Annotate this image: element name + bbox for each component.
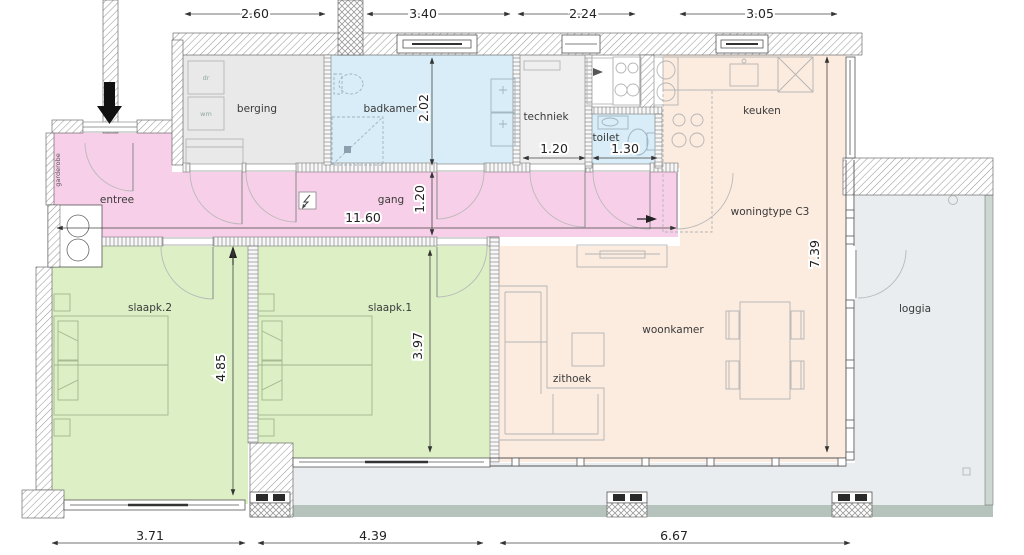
window-badkamer-top [397, 35, 477, 53]
dim-slaapk1-depth: 3.97 [410, 332, 425, 360]
dim-top-4: 3.05 [746, 6, 774, 21]
label-techniek: techniek [523, 111, 569, 123]
window-techniek-top [562, 35, 600, 53]
dim-bottom-2: 4.39 [359, 528, 387, 543]
window-keuken-right [846, 57, 855, 158]
dim-top-3: 2.24 [569, 6, 597, 21]
label-entree: entree [100, 194, 134, 206]
label-badkamer: badkamer [363, 103, 417, 115]
label-loggia: loggia [899, 303, 931, 315]
floor-plan: 2.60 3.40 2.24 3.05 3.71 4.39 6.67 2.02 … [0, 0, 1024, 555]
floor-plan-drawing: 2.60 3.40 2.24 3.05 3.71 4.39 6.67 2.02 … [0, 0, 1024, 555]
dim-slaapk2-depth: 4.85 [213, 354, 228, 382]
dim-top-1: 2.60 [241, 6, 269, 21]
glass-wall-woonkamer-right [846, 160, 854, 460]
duct-shaft [48, 205, 102, 267]
dim-techniek-width: 1.20 [540, 141, 568, 156]
label-garderobe: garderobe [54, 153, 62, 186]
label-woningtype: woningtype C3 [731, 206, 810, 218]
label-slaapk2: slaapk.2 [128, 302, 172, 314]
pillar [607, 492, 647, 517]
pillar [250, 492, 290, 517]
dim-top-2: 3.40 [409, 6, 437, 21]
dim-gang-length: 11.60 [345, 210, 381, 225]
label-slaapk1: slaapk.1 [368, 302, 412, 314]
window-keuken-top [716, 35, 768, 53]
label-toilet: toilet [593, 132, 620, 144]
window-slaapk2-bottom [64, 500, 245, 510]
dim-badkamer-depth: 2.02 [416, 94, 431, 122]
dim-gang-width: 1.20 [412, 185, 427, 213]
loggia-railing [985, 195, 993, 505]
window-slaapk1-bottom [293, 458, 490, 467]
meter-box-icon [299, 192, 316, 209]
pillar [832, 492, 872, 517]
label-zithoek: zithoek [553, 373, 592, 385]
dim-bottom-3: 6.67 [660, 528, 688, 543]
label-woonkamer: woonkamer [642, 324, 704, 336]
room-slaapk1 [258, 246, 490, 462]
label-keuken: keuken [743, 105, 781, 117]
label-washer: wm [200, 110, 212, 118]
label-berging: berging [237, 103, 277, 115]
label-dryer: dr [203, 74, 210, 82]
dim-woonkamer-depth: 7.39 [807, 240, 822, 268]
label-gang: gang [378, 194, 404, 206]
dim-bottom-1: 3.71 [136, 528, 164, 543]
